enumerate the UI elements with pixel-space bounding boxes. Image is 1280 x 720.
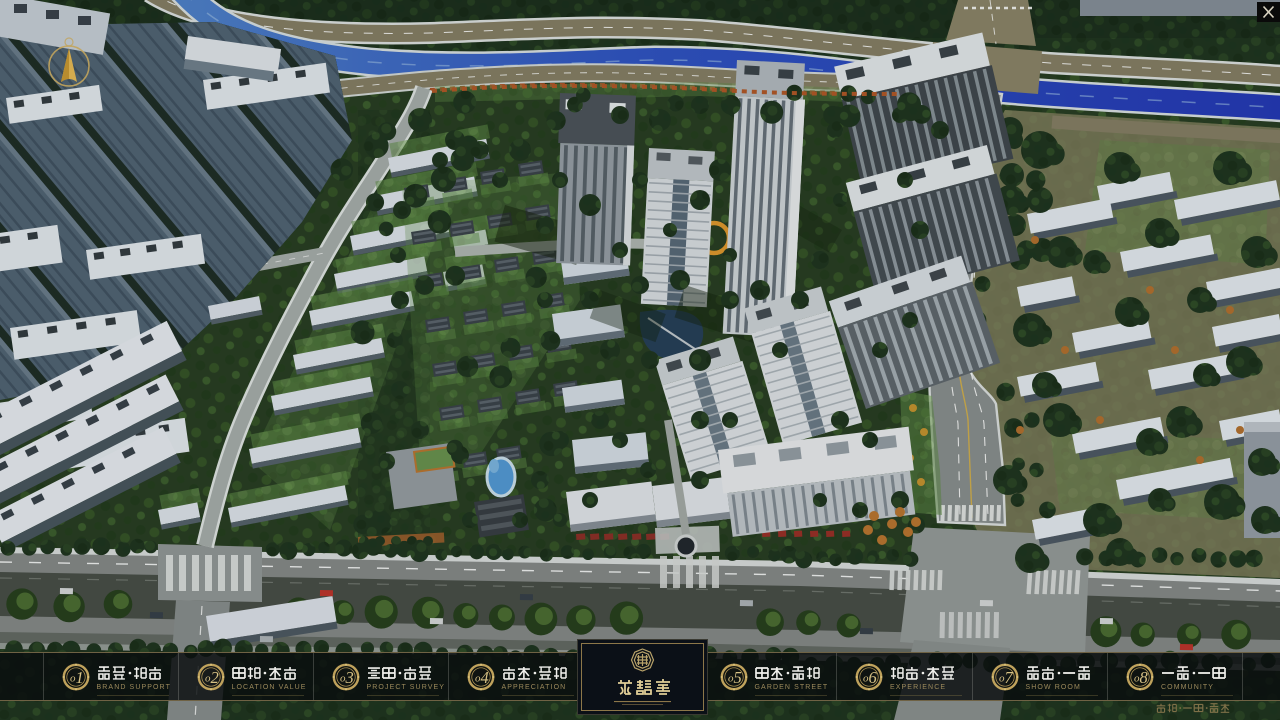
svg-text:1: 1 <box>75 668 83 687</box>
svg-text:8: 8 <box>1140 668 1149 687</box>
svg-text:5: 5 <box>733 668 741 687</box>
svg-text:7: 7 <box>1004 668 1013 687</box>
svg-text:4: 4 <box>480 668 488 687</box>
svg-text:6: 6 <box>869 668 878 687</box>
svg-text:3: 3 <box>344 668 353 687</box>
svg-text:2: 2 <box>210 668 218 687</box>
